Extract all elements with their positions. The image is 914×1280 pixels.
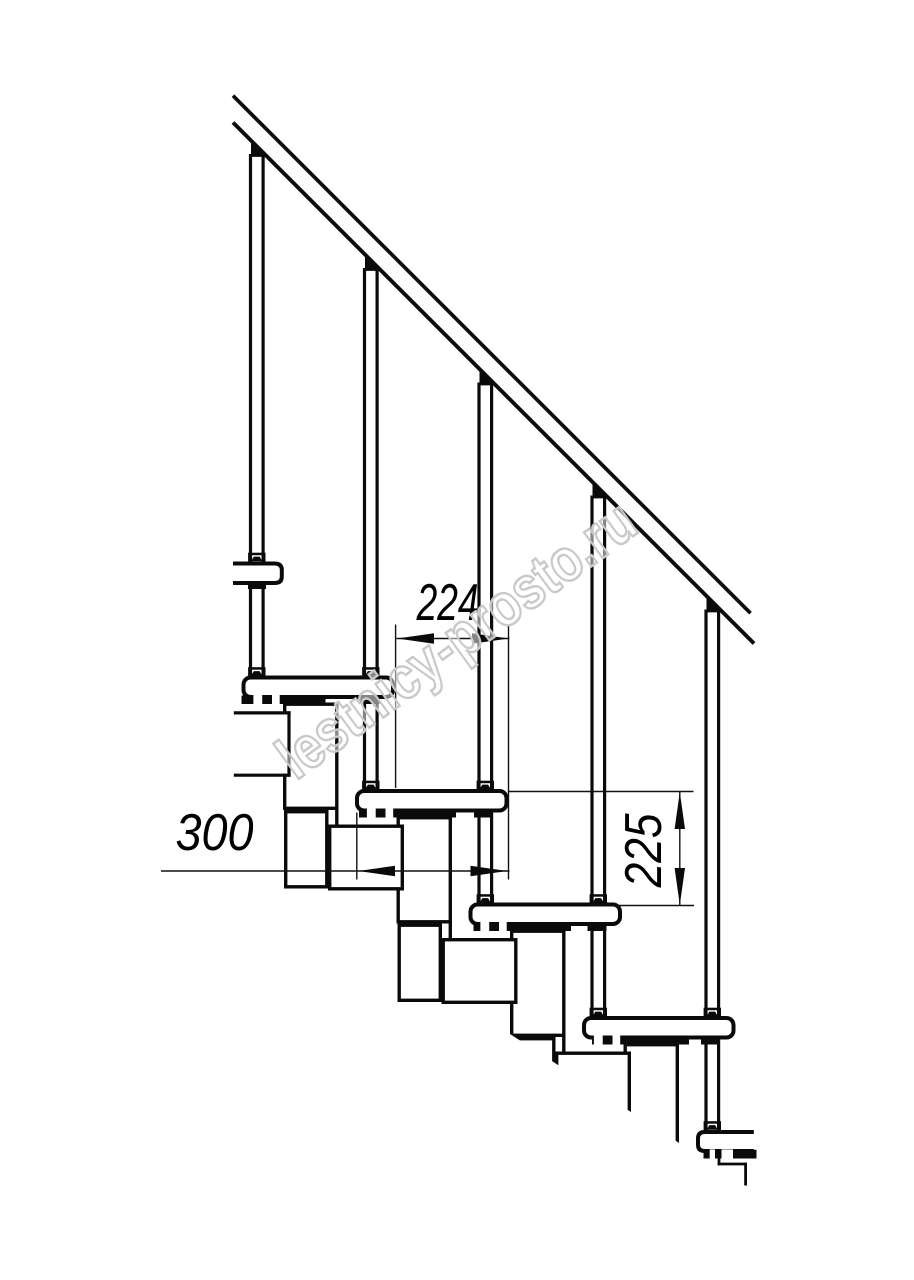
svg-text:225: 225 bbox=[615, 812, 673, 888]
svg-text:300: 300 bbox=[176, 804, 254, 862]
